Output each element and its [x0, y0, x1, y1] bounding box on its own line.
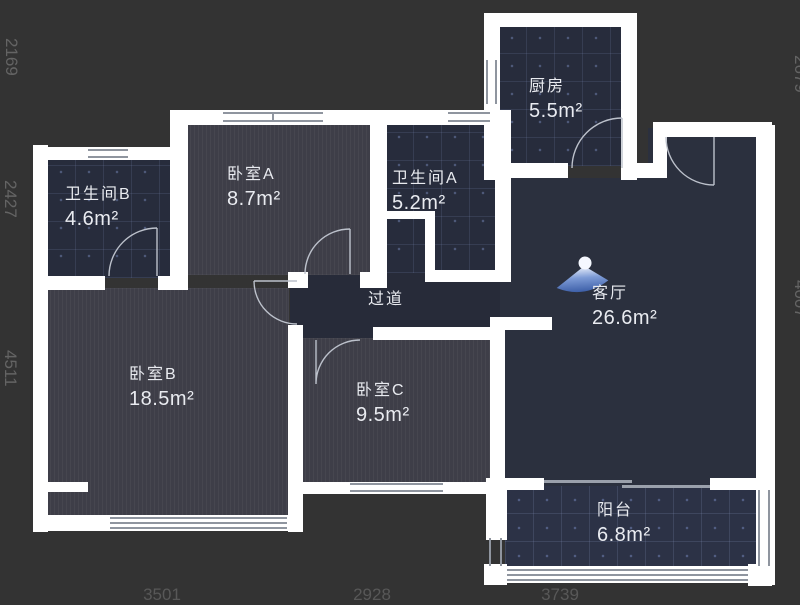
- wall-segment: [370, 110, 387, 288]
- sliding-door-panel: [544, 480, 632, 483]
- wall-segment: [33, 145, 48, 532]
- window: [486, 60, 497, 104]
- room-living-area[interactable]: [500, 178, 757, 490]
- window: [758, 490, 770, 566]
- wall-segment: [495, 110, 511, 282]
- window: [110, 517, 287, 529]
- sliding-door-panel: [622, 485, 710, 488]
- wall-segment: [710, 478, 757, 490]
- window: [88, 149, 128, 158]
- wall-segment: [373, 327, 500, 340]
- room-name: 卫生间B: [65, 184, 132, 205]
- room-area: 18.5m²: [129, 387, 194, 412]
- window: [489, 538, 502, 566]
- dimension-left-1: 2169: [1, 38, 21, 76]
- dimension-right-2: 4007: [790, 280, 800, 318]
- floor-plan-canvas: { "plan": { "type": "apartment-floor-pla…: [0, 0, 800, 600]
- wall-segment: [158, 276, 178, 290]
- wall-segment: [484, 163, 568, 178]
- window: [507, 569, 748, 581]
- wall-pier: [48, 482, 88, 492]
- wall-segment: [170, 110, 188, 290]
- room-area: 4.6m²: [65, 207, 132, 232]
- window: [448, 112, 490, 122]
- wall-segment: [484, 13, 637, 27]
- wall-segment: [621, 13, 637, 180]
- room-name: 卧室A: [227, 164, 281, 185]
- room-name: 卧室C: [356, 380, 410, 401]
- room-area: 9.5m²: [356, 403, 410, 428]
- dimension-right-1: 2679: [790, 55, 800, 93]
- room-area: 6.8m²: [597, 523, 651, 548]
- dimension-bottom-2: 2928: [332, 585, 412, 605]
- room-label-bedroomA: 卧室A 8.7m²: [227, 164, 281, 212]
- room-label-balcony: 阳台 6.8m²: [597, 500, 651, 548]
- wall-segment: [288, 325, 303, 532]
- window-mullion: [272, 112, 274, 122]
- room-name: 卧室B: [129, 364, 194, 385]
- room-name: 过道: [368, 289, 404, 310]
- window: [350, 483, 443, 492]
- room-name: 卫生间A: [392, 168, 459, 189]
- room-label-bedroomB: 卧室B 18.5m²: [129, 364, 194, 412]
- room-area: 26.6m²: [592, 306, 657, 331]
- dimension-left-3: 4511: [0, 350, 20, 387]
- room-area: 8.7m²: [227, 187, 281, 212]
- dimension-bottom-1: 3501: [122, 585, 202, 605]
- wall-segment: [360, 272, 382, 288]
- wall-segment: [33, 276, 105, 290]
- room-name: 客厅: [592, 283, 657, 304]
- wall-segment: [425, 270, 511, 282]
- room-name: 阳台: [597, 500, 651, 521]
- room-area: 5.5m²: [529, 99, 583, 124]
- wall-segment: [490, 317, 552, 330]
- wall-segment: [288, 272, 303, 280]
- wall-segment: [486, 478, 507, 540]
- wall-segment: [490, 330, 505, 480]
- dimension-bottom-3: 3739: [520, 585, 600, 605]
- viewpoint-dot: [578, 256, 592, 270]
- room-name: 厨房: [529, 76, 583, 97]
- dimension-left-2: 2427: [0, 180, 20, 218]
- room-label-hallway: 过道: [368, 289, 404, 310]
- room-label-bedroomC: 卧室C 9.5m²: [356, 380, 410, 428]
- room-label-bathroomB: 卫生间B 4.6m²: [65, 184, 132, 232]
- wall-corner-block: [748, 564, 772, 586]
- room-area: 5.2m²: [392, 191, 459, 216]
- wall-segment: [653, 122, 772, 137]
- room-label-living: 客厅 26.6m²: [592, 283, 657, 331]
- room-label-kitchen: 厨房 5.5m²: [529, 76, 583, 124]
- room-label-bathroomA: 卫生间A 5.2m²: [392, 168, 459, 216]
